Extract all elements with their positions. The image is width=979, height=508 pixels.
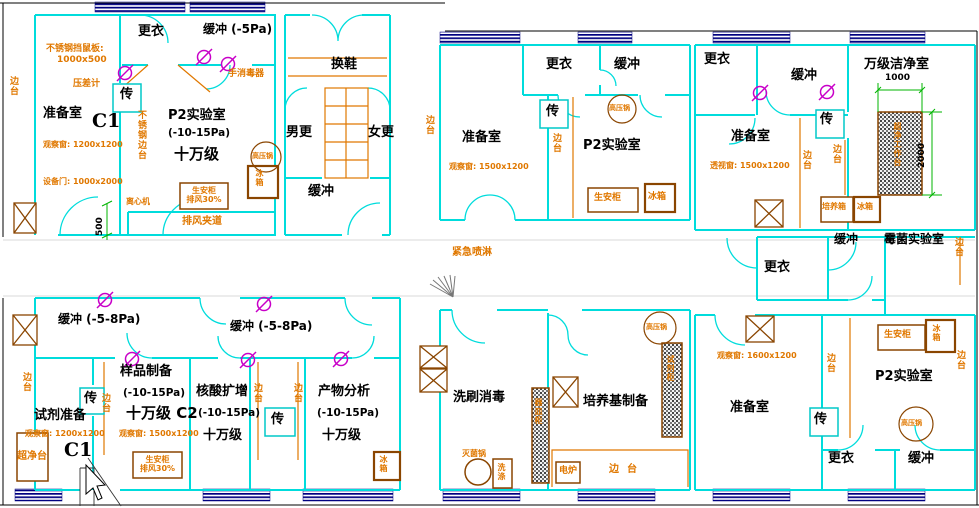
note-obs-window-g: 观察窗: 1600x1200	[717, 352, 797, 360]
room-label-prep-a: 准备室	[43, 107, 82, 120]
note-class-e3: 十万级	[322, 429, 361, 442]
room-label-sample-prep: 样品制备	[120, 365, 172, 378]
note-class-c2: 十万级 C2	[126, 406, 198, 421]
note-obs-window-e1: 观察窗: 1200x1200	[25, 430, 105, 438]
room-label-dressing-c: 更衣	[546, 58, 572, 71]
mouse-cursor[interactable]	[86, 465, 105, 500]
room-label-buffer-c: 缓冲	[614, 58, 640, 71]
pass-box-label-e1: 传	[84, 392, 97, 405]
pass-box-label-e2: 传	[271, 413, 284, 426]
room-label-mold-lab: 霉菌实验室	[884, 233, 944, 245]
room-label-buffer-d2: 缓冲	[834, 233, 858, 245]
note-obs-window-c: 观察窗: 1500x1200	[449, 163, 529, 171]
room-label-dressing-g: 更衣	[828, 452, 854, 465]
room-label-buffer-g: 缓冲	[908, 452, 934, 465]
fridge-label-a: 冰箱	[255, 169, 263, 187]
room-label-p2-a: P2实验室	[168, 109, 226, 122]
note-class-e2: 十万级	[203, 429, 242, 442]
bench-label-e1: 边台	[100, 393, 109, 413]
room-label-reagent-prep: 试剂准备	[34, 409, 86, 422]
biosafety-label-c: 生安柜	[594, 194, 621, 203]
room-label-buffer-a: 缓冲 (-5Pa)	[203, 23, 272, 35]
room-label-men-change: 男更	[286, 126, 312, 139]
note-class-a: 十万级	[174, 147, 219, 162]
note-emergency-shower: 紧急喷淋	[452, 248, 492, 258]
note-pressure-e3: (-10-15Pa)	[317, 408, 379, 419]
room-code-c1-a: C1	[92, 112, 120, 131]
room-label-p2-c: P2实验室	[583, 139, 641, 152]
cad-floorplan: 更衣 缓冲 (-5Pa) 不锈钢挡鼠板: 1000x500 压差计 准备室 C1…	[0, 0, 979, 508]
bench-label-d1: 边台	[801, 150, 810, 170]
room-label-shoe-change: 换鞋	[331, 58, 357, 71]
bench-label-e-left: 边台	[21, 372, 30, 392]
incubator-label-d: 培养箱	[822, 203, 846, 211]
room-code-c1-e: C1	[64, 441, 92, 460]
exhaust30-label-a: 排风30%	[182, 195, 226, 204]
note-pressure-gauge: 压差计	[73, 80, 100, 89]
room-label-pcr: 核酸扩增	[196, 385, 248, 398]
bench-label-e2: 边台	[252, 383, 261, 403]
bench-label-g1: 边台	[825, 353, 834, 373]
bench-label-d2: 边台	[831, 144, 840, 164]
dim-1000: 1000	[885, 74, 910, 83]
pass-box-label-a: 传	[120, 88, 133, 101]
clean-workbench-label: 超净工作台	[893, 122, 901, 167]
room-label-buffer-e2: 缓冲 (-5-8Pa)	[230, 320, 312, 332]
room-label-buffer-d: 缓冲	[791, 69, 817, 82]
room-label-product-analysis: 产物分析	[318, 385, 370, 398]
room-label-buffer-b: 缓冲	[308, 185, 334, 198]
note-obs-window-a: 观察窗: 1200x1200	[43, 141, 123, 149]
note-rodent-board: 不锈钢挡鼠板:	[46, 45, 104, 54]
autoclave-label-a: 高压锅	[252, 153, 273, 160]
note-centrifuge: 离心机	[126, 198, 150, 206]
room-label-women-change: 女更	[368, 126, 394, 139]
bench-label-e3: 边台	[292, 383, 301, 403]
exhaust30-label-e: 排风30%	[135, 464, 180, 473]
vessel-cabinet-label: 器皿柜	[534, 398, 542, 425]
dim-2000: 2000	[918, 143, 927, 168]
shower-spray-icon	[430, 275, 455, 297]
sterilizer-label: 灭菌锅	[462, 450, 486, 458]
pass-box-label-c: 传	[546, 105, 559, 118]
room-label-dressing-d: 更衣	[704, 53, 730, 66]
note-view-window-d: 透视窗: 1500x1200	[710, 162, 790, 170]
fridge-label-c: 冰箱	[648, 193, 666, 202]
room-label-cleanroom-10k: 万级洁净室	[864, 58, 929, 71]
bench-label-c: 边台	[551, 133, 560, 153]
room-label-dressing-a: 更衣	[138, 25, 164, 38]
note-pressure-a: (-10-15Pa)	[168, 128, 230, 139]
fridge-label-d: 冰箱	[857, 203, 873, 211]
bench-label-f: 边台	[609, 465, 645, 475]
reagent-cabinet-label: 试剂柜	[666, 355, 674, 382]
note-equipment-door-a: 设备门: 1000x2000	[43, 178, 123, 186]
fridge-label-e: 冰箱	[379, 455, 387, 473]
fridge-label-g: 冰箱	[932, 324, 940, 342]
autoclave-label-g: 高压锅	[901, 420, 922, 427]
room-label-buffer-e1: 缓冲 (-5-8Pa)	[58, 313, 140, 325]
pass-box-label-g: 传	[814, 413, 827, 426]
clean-bench-label-e: 超净台	[17, 452, 47, 462]
biosafety-cabinet-e: 生安柜 排风30%	[135, 455, 180, 473]
note-hand-sanitizer: 手消毒器	[228, 70, 264, 79]
autoclave-label-c: 高压锅	[609, 105, 630, 112]
note-obs-window-e2: 观察窗: 1500x1200	[119, 430, 199, 438]
room-label-prep-g: 准备室	[730, 401, 769, 414]
dim-500: 500	[96, 217, 105, 236]
bench-label-ss-a: 不锈钢边台	[136, 110, 145, 160]
room-label-prep-c: 准备室	[462, 131, 501, 144]
room-label-dressing-d3: 更衣	[764, 261, 790, 274]
stove-label: 电炉	[559, 467, 577, 476]
bench-label-d3: 边台	[953, 237, 962, 257]
note-exhaust-duct: 排风夹道	[182, 217, 222, 227]
autoclave-label-f: 高压锅	[646, 324, 667, 331]
biosafety-label-e: 生安柜	[135, 455, 180, 464]
biosafety-label-a: 生安柜	[182, 186, 226, 195]
pass-box-label-d: 传	[820, 113, 833, 126]
biosafety-label-g: 生安柜	[884, 331, 911, 340]
bench-label-g2: 边台	[955, 350, 964, 370]
note-pressure-e1: (-10-15Pa)	[123, 388, 185, 399]
room-label-prep-d: 准备室	[731, 130, 770, 143]
fixture-boxes	[17, 166, 955, 488]
note-pressure-e2: (-10-15Pa)	[198, 408, 260, 419]
sink-label: 洗涤	[497, 463, 505, 481]
bench-label-left-outer: 边台	[8, 76, 17, 96]
bench-label-b-right: 边台	[424, 115, 433, 135]
room-label-medium-prep: 培养基制备	[583, 395, 648, 408]
room-label-p2-g: P2实验室	[875, 370, 933, 383]
note-rodent-board-size: 1000x500	[57, 56, 107, 65]
biosafety-cabinet-a: 生安柜 排风30%	[182, 186, 226, 204]
room-label-wash: 洗刷消毒	[453, 391, 505, 404]
